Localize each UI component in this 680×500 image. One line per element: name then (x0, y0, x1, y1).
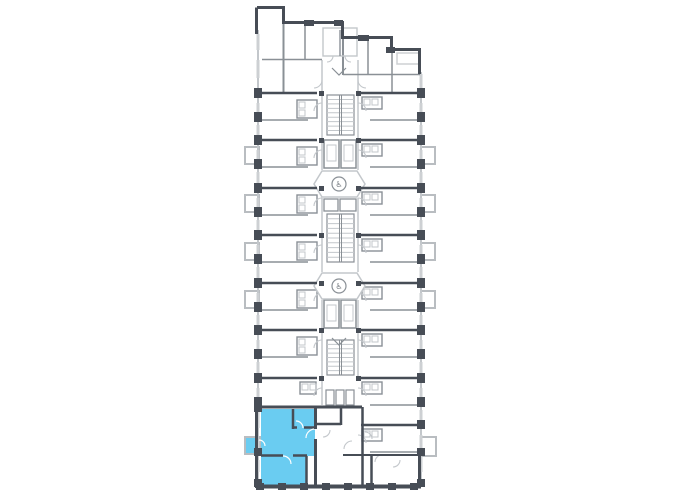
pilaster (254, 112, 262, 122)
pilaster (417, 207, 425, 217)
pilaster (334, 20, 343, 26)
pilaster (254, 135, 262, 145)
stair-shaft (327, 95, 354, 135)
pilaster (322, 483, 330, 490)
corridor-tick (319, 138, 324, 143)
corridor-tick (319, 233, 324, 238)
pilaster (254, 183, 262, 193)
corridor-tick (356, 138, 361, 143)
pilaster (417, 159, 425, 169)
pilaster (254, 349, 262, 359)
corridor-tick (319, 186, 324, 191)
pilaster (417, 397, 425, 407)
door-arc (344, 441, 352, 449)
floor-plan: ♿♿ (0, 0, 680, 500)
pilaster (417, 373, 425, 383)
fixture (364, 384, 370, 390)
pilaster (254, 403, 262, 412)
pilaster (254, 88, 262, 98)
pilaster (417, 254, 425, 264)
corridor-tick (319, 281, 324, 286)
pilaster (388, 483, 396, 490)
elevator-shaft (324, 140, 339, 168)
door-arc (365, 432, 372, 439)
fixture (372, 99, 378, 105)
door-arc (314, 340, 322, 348)
fixture (299, 102, 305, 108)
pilaster (417, 88, 425, 98)
fixture (299, 300, 305, 306)
fixture (364, 241, 370, 247)
fixture (299, 347, 305, 353)
fixture (364, 146, 370, 152)
fixture (372, 431, 378, 437)
pilaster (300, 483, 308, 490)
door-arc (314, 80, 322, 88)
door-arc (345, 56, 351, 62)
staircase (327, 340, 354, 375)
fixture (364, 194, 370, 200)
door-arc (314, 245, 322, 253)
pilaster (256, 483, 264, 490)
fixture (299, 149, 305, 155)
pilaster (417, 479, 425, 487)
fixture (364, 99, 370, 105)
pilaster (417, 302, 425, 312)
fixture (372, 241, 378, 247)
corridor-tick (356, 91, 361, 96)
fixture (302, 384, 308, 390)
pilaster (417, 448, 425, 456)
staircase (327, 95, 354, 135)
pilaster (254, 207, 262, 217)
fixture (372, 289, 378, 295)
pilaster (254, 302, 262, 312)
elevator-icon: ♿ (332, 279, 346, 293)
pilaster (417, 278, 425, 288)
door-arc (358, 80, 366, 88)
fixture (372, 336, 378, 342)
pilaster (254, 254, 262, 264)
fixture (299, 252, 305, 258)
elevator-shaft (341, 300, 356, 328)
pilaster (254, 448, 262, 456)
pilaster (278, 483, 286, 490)
pilaster (417, 420, 425, 429)
door-arc (314, 103, 322, 111)
pilaster (254, 230, 262, 240)
door-arc (375, 455, 382, 462)
pilaster (344, 483, 352, 490)
pilaster (410, 483, 418, 490)
pilaster (366, 483, 374, 490)
pilaster (417, 135, 425, 145)
pilaster (254, 373, 262, 383)
elevator-car (327, 145, 336, 161)
fixture (299, 157, 305, 163)
elevator-icon: ♿ (332, 177, 346, 191)
elevator-shaft (341, 140, 356, 168)
corridor-tick (356, 186, 361, 191)
duct-shaft (326, 390, 334, 405)
elevator-car (327, 305, 336, 321)
service-room (324, 199, 338, 211)
floor-plan-canvas: ♿♿ (0, 0, 680, 500)
fixture (299, 205, 305, 211)
pilaster (358, 35, 369, 41)
pilaster (254, 325, 262, 335)
pilaster (304, 20, 314, 26)
corridor-tick (319, 328, 324, 333)
fixture (310, 384, 316, 390)
fixture (372, 194, 378, 200)
corridor-tick (356, 376, 361, 381)
fixture (299, 292, 305, 298)
duct-shaft (346, 390, 354, 405)
elevator-car (344, 305, 353, 321)
fixture (372, 384, 378, 390)
pilaster (254, 278, 262, 288)
elevator-shaft (324, 300, 339, 328)
fixture (299, 110, 305, 116)
door-arc (314, 198, 322, 206)
pilaster (386, 47, 395, 53)
corridor-tick (356, 233, 361, 238)
corridor-tick (319, 91, 324, 96)
door-arc (327, 56, 333, 62)
pilaster (417, 112, 425, 122)
door-arc (314, 150, 322, 158)
door-arc (393, 460, 400, 467)
corridor-tick (356, 281, 361, 286)
fixture (364, 336, 370, 342)
fixture (372, 146, 378, 152)
fixture (364, 289, 370, 295)
accessible-symbol: ♿ (335, 282, 342, 291)
pilaster (417, 325, 425, 335)
staircase (327, 214, 354, 262)
pilaster (417, 230, 425, 240)
fixture (299, 339, 305, 345)
duct-shaft (336, 390, 344, 405)
fixture (299, 197, 305, 203)
pilaster (417, 183, 425, 193)
corridor-tick (356, 328, 361, 333)
corridor-tick (319, 376, 324, 381)
door-arc (323, 430, 330, 437)
service-room (340, 199, 356, 211)
fixture (299, 244, 305, 250)
loggia (397, 53, 419, 64)
accessible-symbol: ♿ (335, 180, 342, 189)
door-arc (314, 388, 322, 396)
pilaster (254, 159, 262, 169)
elevator-car (344, 145, 353, 161)
pilaster (417, 349, 425, 359)
